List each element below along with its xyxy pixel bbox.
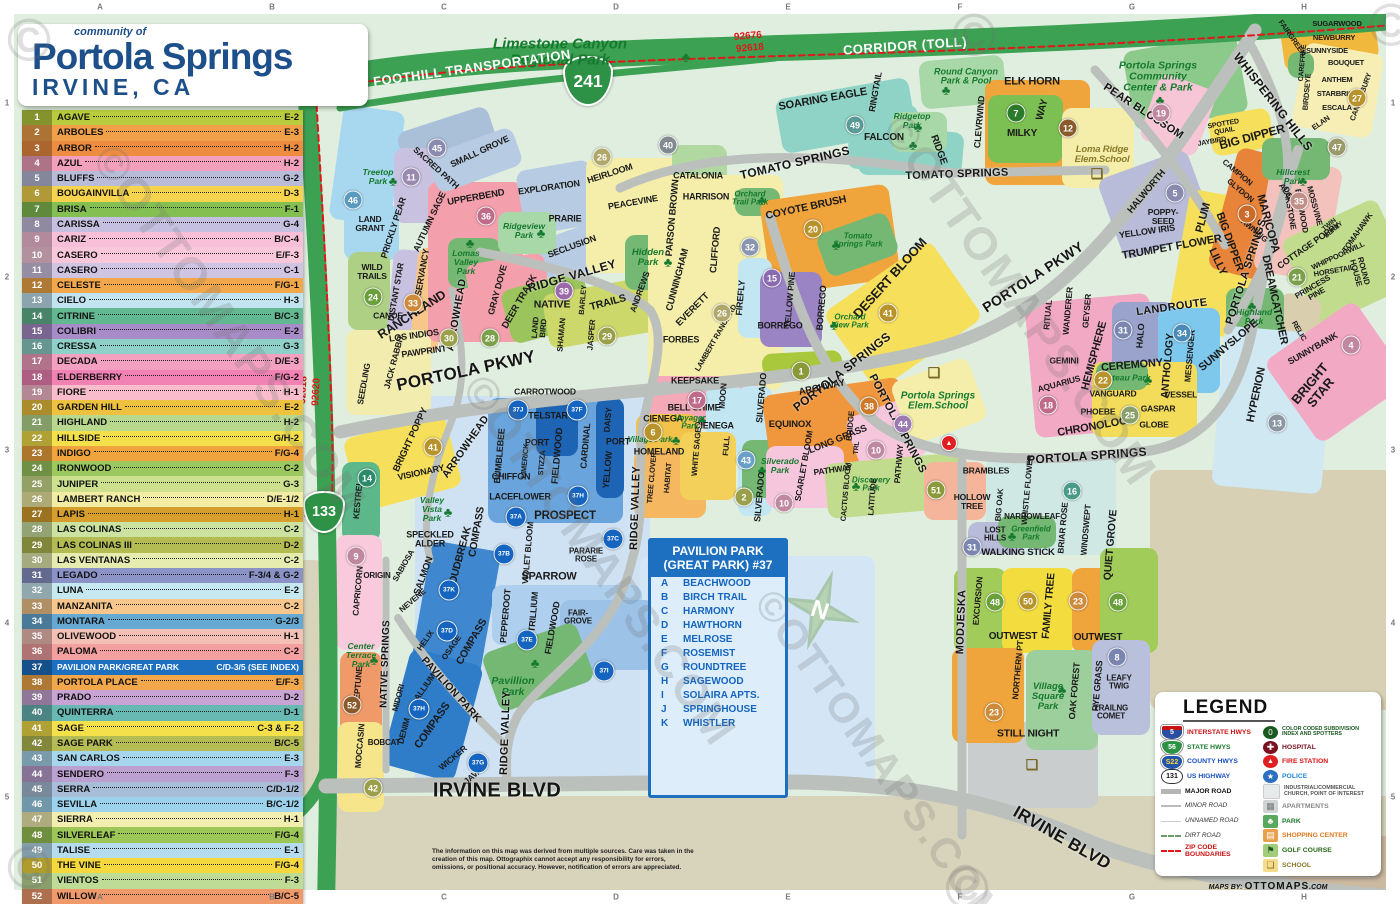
- street-label: LOST HILLS: [984, 527, 1006, 544]
- pavilion-name: ROSEMIST: [683, 648, 735, 659]
- street-label: PATHWAY: [893, 444, 905, 484]
- park-label: Greenfield Park: [1011, 526, 1051, 543]
- street-label: HABITAT: [663, 463, 673, 494]
- street-label: SILVERADO: [755, 373, 769, 424]
- grid-number: 2: [5, 273, 9, 282]
- leader-dots: [89, 390, 281, 391]
- street-label: RINGTAIL: [868, 71, 884, 112]
- pavilion-letter: B: [661, 592, 683, 603]
- leader-dots: [123, 757, 281, 758]
- street-label: BARLEY: [578, 285, 588, 315]
- leader-dots: [143, 497, 263, 498]
- index-number: 20: [22, 400, 52, 415]
- leader-dots: [106, 131, 281, 132]
- index-number: 3: [22, 141, 52, 156]
- index-grid-ref: F/G-4: [275, 860, 299, 871]
- school-icon: ❏: [1263, 859, 1278, 872]
- spotter-badge-26: 26: [593, 148, 612, 167]
- index-row-lapis: 27LAPISH-1: [22, 507, 303, 522]
- park-label: Hidden Park: [632, 248, 664, 268]
- road-label: TOMATO SPRINGS: [739, 144, 851, 181]
- park-label: Ridgeview Park: [503, 222, 545, 240]
- leader-dots: [116, 742, 271, 743]
- legend-shield-icon: S22: [1161, 755, 1183, 770]
- index-number: 50: [22, 858, 52, 873]
- index-number: 10: [22, 247, 52, 262]
- index-number: 28: [22, 522, 52, 537]
- street-label: BRIGHT POPPY: [392, 406, 430, 473]
- index-grid-ref: C-3 & F-2: [257, 723, 299, 734]
- index-name: SENDERO: [57, 769, 104, 780]
- pavilion-letter: G: [661, 662, 683, 673]
- leader-dots: [118, 833, 271, 834]
- index-row-portola-place: 38PORTOLA PLACEE/F-3: [22, 675, 303, 690]
- spotter-badge-30: 30: [440, 329, 459, 348]
- pavilion-park-index-title: PAVILION PARK (GREAT PARK) #37: [651, 541, 785, 577]
- street-label: WANDERER: [1062, 287, 1075, 336]
- pavilion-letter: J: [661, 704, 683, 715]
- industrial-icon: [1263, 784, 1280, 799]
- street-label: PEACEVINE: [607, 194, 658, 212]
- legend-label: MAJOR ROAD: [1185, 788, 1231, 795]
- leader-dots: [116, 604, 281, 605]
- index-number: 33: [22, 599, 52, 614]
- index-row-the-vine: 50THE VINEF/G-4: [22, 858, 303, 873]
- index-row-sierra: 47SIERRAH-1: [22, 812, 303, 827]
- spotter-badge-21: 21: [1288, 268, 1307, 287]
- spotter-badge-37B: 37B: [494, 544, 515, 565]
- street-label: GLOBE: [1139, 421, 1168, 430]
- index-number: 24: [22, 461, 52, 476]
- legend-item-us-highway: 131US HIGHWAY: [1161, 769, 1263, 784]
- spotter-badge-8: 8: [1108, 648, 1127, 667]
- pavilion-name: SAGEWOOD: [683, 676, 744, 687]
- street-label: CLIFFORD: [709, 226, 723, 273]
- index-grid-ref: F/G-2: [275, 372, 299, 383]
- index-grid-ref: C-2: [284, 601, 299, 612]
- index-number: 21: [22, 415, 52, 430]
- index-name: LAPIS: [57, 509, 85, 520]
- street-label: WILD TRAILS: [357, 263, 387, 281]
- park-label: Valley Vista Park: [420, 496, 444, 522]
- legend-box: LEGEND 5INTERSTATE HWYS56STATE HWYSS22CO…: [1155, 692, 1381, 876]
- street-label: VANGUARD: [1090, 390, 1137, 399]
- park-label: Portola Springs Community Center & Park: [1119, 61, 1197, 94]
- street-label: JASPER: [587, 319, 598, 350]
- legend-item-police: ★POLICE: [1263, 769, 1375, 784]
- road-label: IRVINE BLVD: [433, 781, 561, 802]
- hospital-icon: ✚: [1263, 741, 1278, 754]
- street-label: EXPLORATION: [518, 179, 581, 197]
- spotter-badge-12: 12: [1059, 119, 1078, 138]
- leader-dots: [101, 360, 272, 361]
- index-name: INDIGO: [57, 448, 91, 459]
- legend-label: UNNAMED ROAD: [1185, 818, 1238, 825]
- index-row-lambert-ranch: 26LAMBERT RANCHD/E-1/2: [22, 492, 303, 507]
- index-name: HIGHLAND: [57, 417, 107, 428]
- street-label: HEIRLOOM: [586, 162, 634, 185]
- street-label: FAMILY TREE: [1041, 573, 1058, 640]
- leader-dots: [103, 222, 280, 223]
- index-name: SAGE PARK: [57, 738, 113, 749]
- index-name: CIELO: [57, 295, 86, 306]
- legend-label: POLICE: [1282, 773, 1307, 780]
- index-grid-ref: G-4: [283, 219, 299, 230]
- index-name: SILVERLEAF: [57, 830, 115, 841]
- index-name: LAS VENTANAS: [57, 555, 130, 566]
- street-label: FULL: [722, 436, 732, 456]
- spotter-badge-37J: 37J: [508, 400, 529, 421]
- index-name: CRESSA: [57, 341, 97, 352]
- leader-dots: [101, 268, 281, 269]
- pavilion-entry-b: BBIRCH TRAIL: [651, 591, 785, 605]
- spotter-badge-32: 32: [741, 238, 760, 257]
- street-label: WICKER: [437, 744, 468, 772]
- spotter-badge-37E: 37E: [517, 630, 538, 651]
- index-grid-ref: F/G-4: [275, 448, 299, 459]
- index-row-cariz: 9CARIZB/C-4: [22, 232, 303, 247]
- street-label: RELIC: [1290, 320, 1308, 343]
- index-number: 25: [22, 476, 52, 491]
- index-row-las-colinas-iii: 29LAS COLINAS IIID-2: [22, 537, 303, 552]
- grid-letter: H: [1301, 893, 1307, 902]
- shopping-icon: ▤: [1263, 829, 1278, 842]
- index-number: 44: [22, 766, 52, 781]
- leader-dots: [86, 589, 281, 590]
- index-row-sevilla: 46SEVILLAB/C-1/2: [22, 797, 303, 812]
- pavilion-name: HARMONY: [683, 606, 735, 617]
- spotter-badge-37C: 37C: [603, 529, 624, 550]
- street-label: ANTHEM: [1322, 76, 1353, 84]
- pavilion-entry-i: ISOLAIRA APTS.: [651, 689, 785, 703]
- grid-letter: H: [1301, 3, 1307, 12]
- index-grid-ref: E-3: [284, 753, 299, 764]
- street-label: CHIFFON: [492, 472, 531, 481]
- spotter-badge-49: 49: [846, 116, 865, 135]
- index-number: 18: [22, 370, 52, 385]
- leader-dots: [125, 375, 272, 376]
- pavilion-letter: K: [661, 718, 683, 729]
- index-row-sendero: 44SENDEROF-3: [22, 766, 303, 781]
- street-label: VESSEL: [1165, 391, 1197, 400]
- leader-dots: [94, 451, 272, 452]
- spotter-badge-31: 31: [963, 538, 982, 557]
- legend-label: PARK: [1282, 818, 1301, 825]
- spotter-badge-1: 1: [792, 362, 811, 381]
- street-label: STILL NIGHT: [997, 729, 1059, 740]
- spotter-badge-3: 3: [1238, 205, 1257, 224]
- index-name: OLIVEWOOD: [57, 631, 116, 642]
- street-label: SHAMAN: [556, 318, 567, 353]
- disclaimer-text: The information on this map was derived …: [432, 848, 700, 872]
- leader-dots: [125, 406, 281, 407]
- street-label: SEEDLING: [356, 363, 372, 406]
- index-row-brisa: 7BRISAF-1: [22, 202, 303, 217]
- index-row-sage-park: 42SAGE PARKB/C-5: [22, 736, 303, 751]
- index-grid-ref: H-1: [284, 387, 299, 398]
- grid-number: 5: [1391, 793, 1395, 802]
- index-row-olivewood: 35OLIVEWOODH-1: [22, 629, 303, 644]
- index-grid-ref: B/C-5: [274, 738, 299, 749]
- street-label: KEEPSAKE: [671, 376, 719, 385]
- index-name: SEVILLA: [57, 799, 97, 810]
- spotter-badge-37K: 37K: [439, 580, 460, 601]
- spotter-badge-13: 13: [1268, 414, 1287, 433]
- index-grid-ref: D-3: [284, 188, 299, 199]
- legend-item-major-road: MAJOR ROAD: [1161, 784, 1263, 799]
- leader-dots: [107, 772, 282, 773]
- street-label: BOUQUET: [1328, 59, 1364, 67]
- grid-letter: B: [269, 3, 275, 12]
- ottomaps-suffix: .COM: [1309, 884, 1327, 891]
- zipcode-label: 92620: [311, 378, 323, 406]
- spotter-badge-44: 44: [894, 415, 913, 434]
- index-grid-ref: G/H-2: [274, 433, 299, 444]
- index-number: 49: [22, 843, 52, 858]
- spotter-badge-41: 41: [424, 438, 443, 457]
- index-number: 5: [22, 171, 52, 186]
- street-label: FOOTHILL TRANSPORTATION: [372, 47, 571, 88]
- street-label: LAND GRANT: [355, 215, 384, 233]
- map-title: Portola Springs: [32, 38, 368, 75]
- street-label: RIDGE: [928, 134, 948, 166]
- index-number: 12: [22, 278, 52, 293]
- legend-item-minor-road: MINOR ROAD: [1161, 799, 1263, 814]
- legend-right-column: 0COLOR CODED SUBDIVISION INDEX AND SPOTT…: [1263, 725, 1375, 873]
- spotter-badge-16: 16: [1063, 482, 1082, 501]
- index-grid-ref: G-3: [283, 479, 299, 490]
- index-number: 17: [22, 354, 52, 369]
- grid-letter: C: [441, 893, 447, 902]
- street-label: COYOTE BRUSH: [765, 194, 848, 222]
- street-label: PEPPEROOT: [499, 589, 513, 644]
- index-row-fiore: 19FIOREH-1: [22, 385, 303, 400]
- street-label: MILKY: [1007, 129, 1037, 139]
- index-name: SAGE: [57, 723, 84, 734]
- legend-label: INDUSTRIAL/COMMERCIAL CHURCH, POINT OF I…: [1284, 786, 1364, 797]
- spotter-badge-42: 42: [364, 779, 383, 798]
- index-number: 2: [22, 125, 52, 140]
- spotter-badge-37F: 37F: [567, 400, 588, 421]
- index-grid-ref: F-3: [285, 769, 299, 780]
- title-card: community of Portola Springs IRVINE, CA: [18, 24, 368, 106]
- road-label: RIDGE VALLEY: [499, 691, 513, 775]
- street-label: TRL: [853, 441, 861, 455]
- index-name: LAS COLINAS III: [57, 540, 132, 551]
- street-label: ROUND HOUSE: [1346, 250, 1373, 294]
- street-label: SILVERADO: [753, 472, 767, 523]
- street-label: GRAY DOVE: [487, 264, 509, 316]
- leader-dots: [104, 864, 272, 865]
- pavilion-name: HAWTHORN: [683, 620, 742, 631]
- index-name: PAVILION PARK/GREAT PARK: [57, 662, 179, 672]
- zipcode-label: 92618: [736, 43, 765, 56]
- leader-dots: [102, 879, 282, 880]
- index-number: 35: [22, 629, 52, 644]
- spotter-badge-37H: 37H: [409, 699, 430, 720]
- grid-letter: A: [97, 893, 103, 902]
- pavilion-entry-j: JSPRINGHOUSE: [651, 703, 785, 717]
- grid-letter: G: [1129, 3, 1135, 12]
- spotter-badge-34: 34: [1173, 324, 1192, 343]
- index-number: 7: [22, 202, 52, 217]
- grid-number: 4: [5, 619, 9, 628]
- street-label: SUNNYSIDE: [1306, 47, 1348, 55]
- leader-dots: [108, 619, 272, 620]
- street-label: AQUARIUS: [1037, 374, 1082, 394]
- street-label: WINDSWEPT: [1079, 504, 1092, 556]
- street-label: SUNNYSLOPE: [1197, 318, 1261, 374]
- street-label: LACEFLOWER: [489, 492, 551, 501]
- index-row-citrine: 14CITRINEB/C-3: [22, 308, 303, 323]
- index-row-talise: 49TALISEE-1: [22, 843, 303, 858]
- legend-item-park: ♣PARK: [1263, 814, 1375, 829]
- grid-letter: F: [958, 893, 963, 902]
- index-grid-ref: B/C-1/2: [266, 799, 299, 810]
- index-number: 8: [22, 217, 52, 232]
- road-label: IRVINE BLVD: [1010, 803, 1114, 873]
- leader-dots: [135, 543, 281, 544]
- leader-dots: [93, 848, 281, 849]
- legend-label: GOLF COURSE: [1282, 847, 1332, 854]
- grid-letter: E: [785, 893, 790, 902]
- index-row-ironwood: 24IRONWOODC-2: [22, 461, 303, 476]
- grid-letter: A: [97, 3, 103, 12]
- leader-dots: [95, 146, 281, 147]
- street-label: TREE CLOVER: [646, 452, 658, 504]
- index-row-luna: 32LUNAE-2: [22, 583, 303, 598]
- legend-label: INTERSTATE HWYS: [1187, 729, 1251, 736]
- index-grid-ref: H-1: [284, 814, 299, 825]
- index-name: MANZANITA: [57, 601, 113, 612]
- spotter-badge-4: 4: [1342, 336, 1361, 355]
- legend-left-column: 5INTERSTATE HWYS56STATE HWYSS22COUNTY HW…: [1161, 725, 1263, 873]
- spotter-badge-5: 5: [1166, 184, 1185, 203]
- index-name: BRISA: [57, 204, 87, 215]
- index-row-legado: 31LEGADOF-3/4 & G-2: [22, 568, 303, 583]
- spotter-badge-46: 46: [344, 191, 363, 210]
- index-row-garden-hill: 20GARDEN HILLE-2: [22, 400, 303, 415]
- spotter-badge-37A: 37A: [506, 507, 527, 528]
- legend-item-state-hwys: 56STATE HWYS: [1161, 740, 1263, 755]
- index-row-arboles: 2ARBOLESE-3: [22, 125, 303, 140]
- street-label: PARSON BROWN: [665, 179, 682, 257]
- index-name: IRONWOOD: [57, 463, 111, 474]
- street-label: PHOEBE: [1081, 408, 1116, 417]
- spotter-badge-24: 24: [364, 288, 383, 307]
- street-label: UPPERBEND: [447, 188, 506, 208]
- index-row-las-colinas: 28LAS COLINASC-2: [22, 522, 303, 537]
- legend-item-school: ❏SCHOOL: [1263, 858, 1375, 873]
- legend-item-golf-course: ⚑GOLF COURSE: [1263, 843, 1375, 858]
- grid-number: 1: [5, 99, 9, 108]
- index-row-bougainvilla: 6BOUGAINVILLAD-3: [22, 186, 303, 201]
- leader-dots: [85, 161, 280, 162]
- legend-label: HOSPITAL: [1282, 744, 1316, 751]
- grid-number: 3: [5, 446, 9, 455]
- index-name: BOUGAINVILLA: [57, 188, 129, 199]
- leader-dots: [100, 650, 280, 651]
- index-number: 52: [22, 889, 52, 904]
- legend-item-dirt-road: DIRT ROAD: [1161, 829, 1263, 844]
- street-label: RITUAL: [1042, 300, 1053, 331]
- index-name: GARDEN HILL: [57, 402, 122, 413]
- street-label: PORT: [525, 438, 549, 447]
- index-name: LUNA: [57, 585, 83, 596]
- pavilion-letter: H: [661, 676, 683, 687]
- spotter-badge-25: 25: [1121, 406, 1140, 425]
- pavilion-park-index-box: PAVILION PARK (GREAT PARK) #37 ABEACHWOO…: [648, 538, 788, 798]
- spotter-badge-14: 14: [358, 469, 377, 488]
- spotter-badge-51: 51: [927, 481, 946, 500]
- index-number: 16: [22, 339, 52, 354]
- legend-title: LEGEND: [1183, 697, 1275, 722]
- street-label: GASPAR: [1141, 405, 1176, 414]
- legend-line-sample: [1161, 850, 1181, 852]
- leader-dots: [87, 726, 254, 727]
- street-label: ANDREWS: [629, 271, 652, 314]
- golf-icon: ⚑: [1263, 844, 1278, 857]
- park-label: Tomato Springs Park: [833, 233, 882, 250]
- leader-dots: [101, 482, 280, 483]
- legend-label: SHOPPING CENTER: [1282, 832, 1348, 839]
- pavilion-entry-h: HSAGEWOOD: [651, 675, 785, 689]
- street-label: FIELDWOOD: [544, 601, 562, 655]
- index-row-cressa: 16CRESSAG-3: [22, 339, 303, 354]
- leader-dots: [94, 696, 280, 697]
- park-label: Hillcrest Park: [1276, 168, 1310, 186]
- pavilion-letter: D: [661, 620, 683, 631]
- index-number: 39: [22, 690, 52, 705]
- index-number: 26: [22, 492, 52, 507]
- spotter-badge-48: 48: [1109, 593, 1128, 612]
- street-label: CARDINAL: [579, 423, 592, 469]
- index-number: 13: [22, 293, 52, 308]
- spotter-badge-47: 47: [1328, 138, 1347, 157]
- index-row-bluffs: 5BLUFFSG-2: [22, 171, 303, 186]
- street-label: CORRIDOR (TOLL): [843, 35, 968, 57]
- index-row-indigo: 23INDIGOF/G-4: [22, 446, 303, 461]
- spotter-badge-31: 31: [1114, 321, 1133, 340]
- index-row-arbor: 3ARBORH-2: [22, 141, 303, 156]
- grid-number: 4: [1391, 619, 1395, 628]
- index-grid-ref: C/D-3/5 (SEE INDEX): [216, 662, 299, 672]
- park-label: Lomas Valley Park: [452, 249, 479, 275]
- index-grid-ref: H-1: [284, 631, 299, 642]
- spotter-badge-17: 17: [688, 391, 707, 410]
- legend-line-sample: [1161, 805, 1181, 807]
- park-label: Silverado Park: [761, 457, 799, 475]
- pavilion-name: BIRCH TRAIL: [683, 592, 747, 603]
- index-number: 45: [22, 782, 52, 797]
- grid-number: 1: [1391, 99, 1395, 108]
- street-label: SUGARWOOD: [1312, 20, 1361, 28]
- leader-dots: [101, 253, 273, 254]
- street-label: LAND BIRD: [531, 317, 549, 340]
- pavilion-letter: C: [661, 606, 683, 617]
- legend-footer: MAPS BY: OTTOMAPS.COM: [1161, 877, 1375, 892]
- spotter-badge-38: 38: [860, 397, 879, 416]
- index-row-serra: 45SERRAC/D-1/2: [22, 782, 303, 797]
- index-row-azul: 4AZULH-2: [22, 156, 303, 171]
- grid-letter: G: [1129, 893, 1135, 902]
- street-label: HELIX: [416, 629, 436, 652]
- index-grid-ref: F-3/4 & G-2: [249, 570, 299, 581]
- index-row-montara: 34MONTARAG-2/3: [22, 614, 303, 629]
- legend-shield-icon: 5: [1161, 725, 1183, 740]
- legend-shield-icon: 56: [1161, 740, 1183, 755]
- pavilion-name: MELROSE: [683, 634, 732, 645]
